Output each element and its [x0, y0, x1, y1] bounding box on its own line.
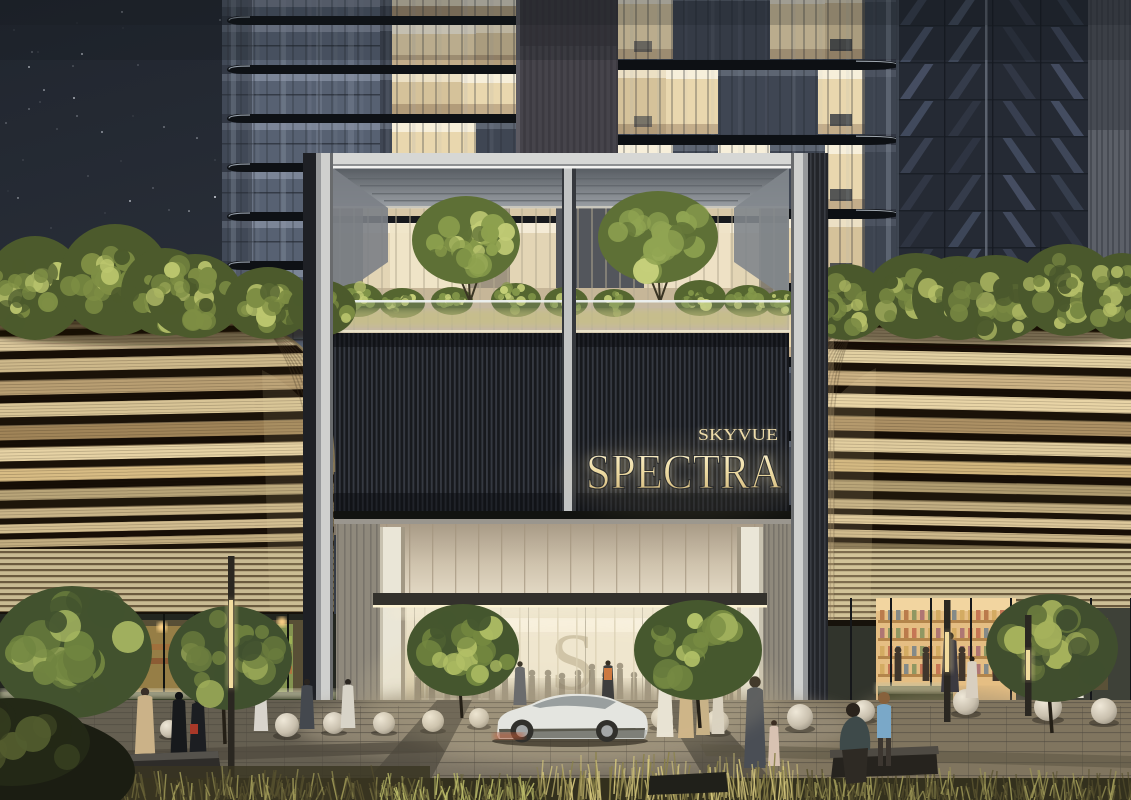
svg-text:SPECTRA: SPECTRA [586, 443, 782, 499]
svg-text:SKYVUE: SKYVUE [698, 425, 778, 444]
